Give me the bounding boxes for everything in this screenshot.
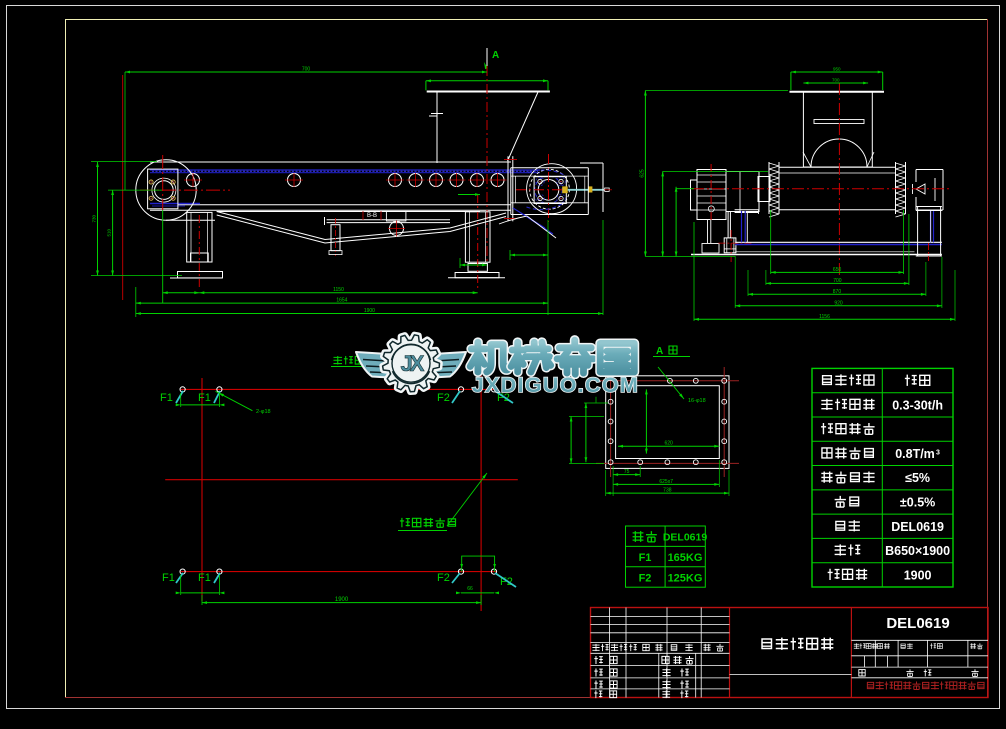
- svg-text:620: 620: [664, 441, 673, 447]
- svg-text:510: 510: [107, 229, 112, 237]
- svg-text:F1: F1: [198, 572, 211, 584]
- svg-text:1900: 1900: [904, 568, 932, 582]
- svg-text:625: 625: [639, 169, 645, 178]
- svg-text:16-φ18: 16-φ18: [688, 398, 706, 404]
- svg-text:1156: 1156: [819, 314, 830, 320]
- svg-text:0.3-30t/h: 0.3-30t/h: [892, 398, 943, 412]
- svg-text:870: 870: [833, 289, 842, 295]
- svg-text:920: 920: [834, 300, 843, 306]
- svg-text:B650×1900: B650×1900: [885, 544, 950, 558]
- svg-text:≤5%: ≤5%: [905, 471, 930, 485]
- svg-text:JX: JX: [401, 351, 425, 376]
- svg-text:A: A: [492, 50, 499, 61]
- svg-text:DEL0619: DEL0619: [891, 520, 944, 534]
- svg-text:F2: F2: [437, 392, 450, 404]
- svg-text:738: 738: [663, 488, 672, 494]
- svg-text:650: 650: [833, 267, 842, 273]
- svg-text:F1: F1: [162, 572, 175, 584]
- svg-text:2-φ18: 2-φ18: [256, 409, 271, 415]
- svg-text:A: A: [656, 346, 663, 357]
- svg-text:3: 3: [936, 449, 940, 456]
- svg-text:66: 66: [467, 586, 473, 592]
- svg-text:B-B: B-B: [367, 213, 377, 219]
- svg-text:±0.5%: ±0.5%: [900, 495, 935, 509]
- svg-text:DEL0619: DEL0619: [886, 615, 949, 632]
- svg-text:950: 950: [833, 67, 841, 72]
- svg-text:700: 700: [302, 67, 311, 73]
- svg-text:F2: F2: [639, 573, 652, 585]
- svg-text:75: 75: [624, 469, 630, 475]
- svg-text:0.8T/m: 0.8T/m: [895, 447, 935, 461]
- svg-text:F1: F1: [160, 392, 173, 404]
- svg-text:125KG: 125KG: [668, 573, 703, 585]
- svg-text:1900: 1900: [335, 597, 349, 603]
- svg-text:1654: 1654: [336, 298, 347, 304]
- svg-text:JXDIGUO.COM: JXDIGUO.COM: [472, 373, 639, 397]
- svg-text:700: 700: [833, 278, 842, 284]
- svg-text:625x7: 625x7: [659, 479, 673, 485]
- svg-text:165KG: 165KG: [668, 552, 703, 564]
- svg-text:DEL0619: DEL0619: [663, 532, 708, 544]
- svg-text:700: 700: [832, 78, 840, 83]
- svg-text:730: 730: [92, 215, 97, 223]
- svg-text:F1: F1: [198, 392, 211, 404]
- svg-text:1900: 1900: [364, 308, 375, 314]
- svg-text:F1: F1: [639, 552, 652, 564]
- svg-text:1150: 1150: [333, 287, 344, 293]
- svg-text:F2: F2: [437, 572, 450, 584]
